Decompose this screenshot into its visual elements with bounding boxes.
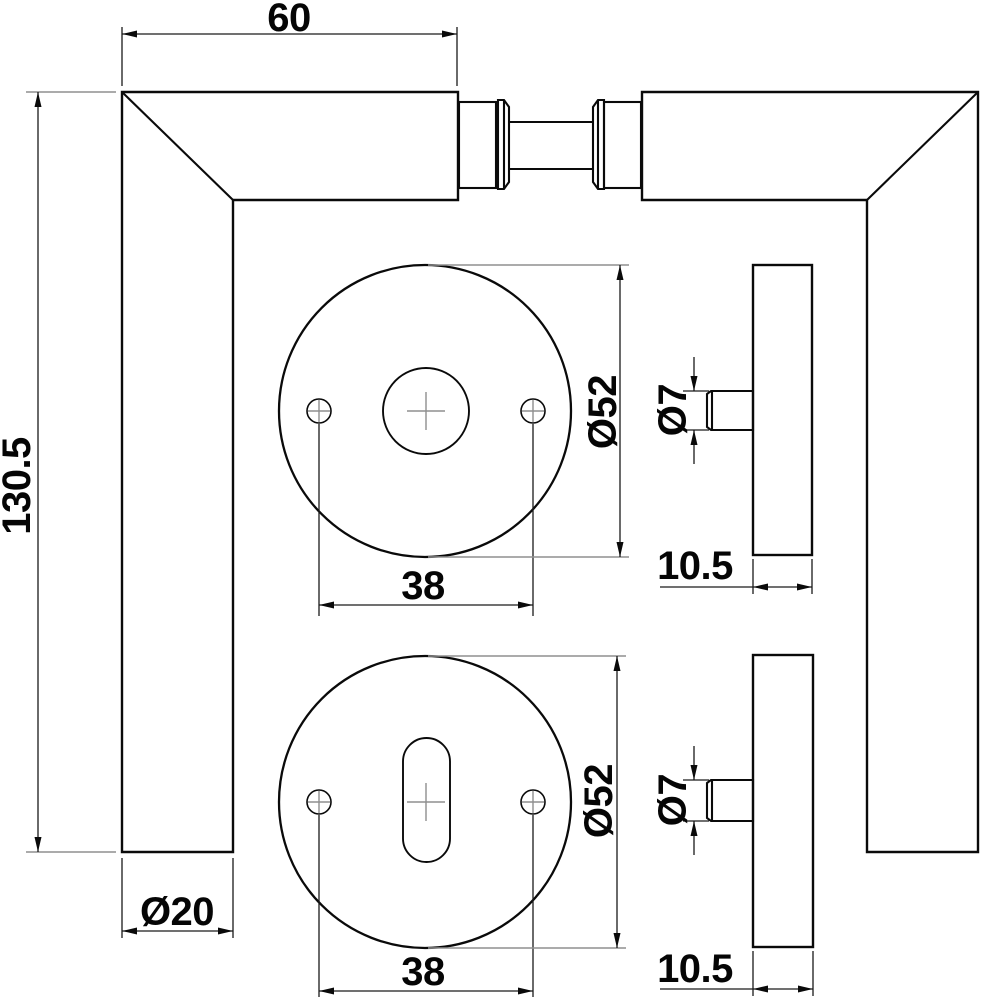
- dimension-pin-diameter-bottom: Ø7: [651, 746, 709, 855]
- dimension-rose-thickness-bottom: 10.5: [657, 947, 813, 996]
- dimension-grip-diameter: Ø20: [122, 858, 233, 938]
- dim-screw-spacing-bottom-label: 38: [401, 950, 445, 994]
- fixing-pin-top: [707, 391, 753, 430]
- dim-handle-length-label: 60: [267, 0, 311, 40]
- dimension-pin-diameter-top: Ø7: [651, 357, 709, 464]
- rose-top-side-view: [707, 265, 812, 555]
- rose-top-front-view: [279, 265, 571, 557]
- drawing-canvas: 60 130.5 Ø20 38: [0, 0, 982, 1000]
- dimension-screw-spacing-bottom: 38: [319, 815, 533, 997]
- spindle-assembly: [459, 100, 641, 189]
- dimension-handle-length: 60: [122, 0, 457, 86]
- dim-handle-height-label: 130.5: [0, 437, 39, 535]
- rose-top-side-body: [753, 265, 812, 555]
- dimension-screw-spacing-top: 38: [319, 424, 533, 616]
- lever-handle-left: [122, 92, 458, 852]
- miter-line-left: [122, 92, 233, 200]
- technical-drawing-svg: 60 130.5 Ø20 38: [0, 0, 982, 1000]
- rose-bottom-side-body: [753, 655, 813, 947]
- dim-pin-diameter-bottom-label: Ø7: [651, 774, 695, 826]
- dim-rose-diameter-bottom-label: Ø52: [577, 764, 621, 838]
- dimension-rose-thickness-top: 10.5: [657, 544, 812, 594]
- fixing-pin-bottom: [707, 780, 753, 821]
- miter-line-right: [867, 92, 978, 200]
- dimension-handle-height: 130.5: [0, 92, 116, 852]
- rose-bottom-front-view: [279, 656, 571, 948]
- lever-handle-right: [642, 92, 978, 852]
- collar-right: [604, 102, 641, 188]
- dim-rose-diameter-top-label: Ø52: [581, 375, 625, 449]
- rose-bottom-side-view: [707, 655, 813, 947]
- dim-pin-diameter-top-label: Ø7: [651, 384, 695, 436]
- dim-rose-thickness-top-label: 10.5: [657, 544, 733, 588]
- collar-left: [459, 102, 496, 188]
- dim-rose-thickness-bottom-label: 10.5: [657, 947, 733, 991]
- dim-screw-spacing-top-label: 38: [401, 564, 445, 608]
- dim-grip-diameter-label: Ø20: [140, 890, 214, 934]
